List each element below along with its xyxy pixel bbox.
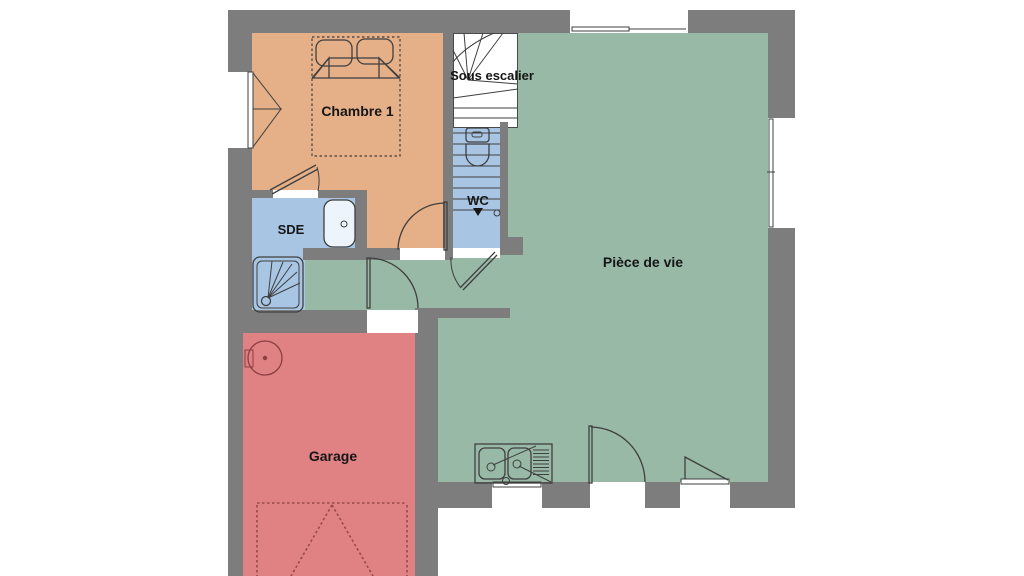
floor-plan: Chambre 1 Sous escalier WC SDE Pièce de … [0,0,1024,576]
top-window-icon [572,27,686,31]
label-shower-room: SDE [267,222,315,237]
plan-symbols [0,0,1024,576]
staircase-icon [453,33,518,216]
water-heater-icon [245,341,282,375]
label-living-room: Pièce de vie [583,254,703,270]
small-window-icon [681,457,729,484]
toilet-icon [466,128,489,166]
label-wc: WC [463,193,493,208]
left-window-icon [248,72,281,148]
label-garage: Garage [293,448,373,464]
bedroom-door-swing [398,202,447,250]
sde-door-swing [270,165,319,194]
bathtub-icon [324,200,355,247]
wc-door-swing [451,252,497,290]
garage-door-icon [257,503,407,576]
kitchen-sink-icon [475,444,552,485]
label-under-stairs: Sous escalier [437,68,547,83]
double-bed-icon [312,37,400,156]
right-window-icon [767,119,775,227]
shower-icon [253,257,303,312]
label-bedroom: Chambre 1 [300,103,415,119]
hall-garage-door-swing [367,258,418,308]
wc-arrow-icon [473,208,483,216]
entry-door-swing [589,426,645,483]
